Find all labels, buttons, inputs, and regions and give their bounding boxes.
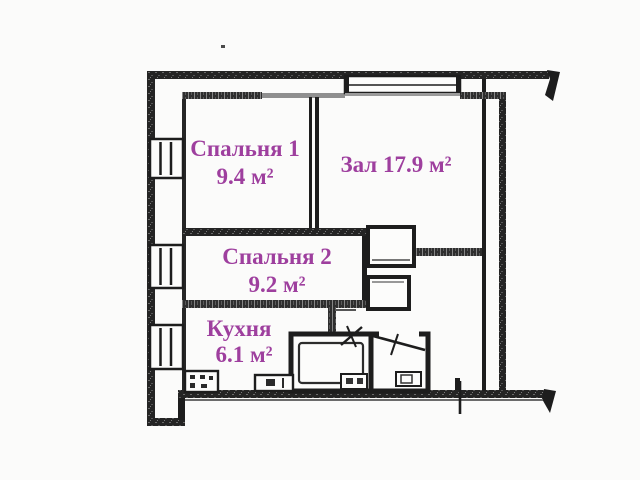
closets [368,227,414,309]
washbasin-detail-b [357,378,363,384]
wall-hallway-hatch [415,248,482,256]
window-top-cap-left [345,76,349,93]
wall-hall-top-right [460,92,506,99]
entrance-door-jamb [455,378,460,390]
floor-plan-page: Спальня 1 9.4 м² Зал 17.9 м² Спальня 2 9… [0,0,640,480]
wall-divider-bedroom1-left [309,97,312,230]
stove-burner-2 [200,375,205,379]
label-bedroom2-area: 9.2 м² [248,272,305,297]
stove-burner-4 [190,383,195,388]
wall-kitchen-right-stub [336,309,356,311]
wall-bottom-underline [185,399,543,401]
wc [371,330,428,391]
stove-icon [185,371,218,392]
wall-corridor-outer [499,98,506,391]
stove-burner-5 [201,384,207,388]
wall-divider-bedroom1-right [315,97,319,230]
window-bay-2 [150,245,183,288]
label-bedroom2-name: Спальня 2 [222,244,332,269]
label-bedroom1-area: 9.4 м² [216,164,273,189]
wc-door-opening [379,330,419,338]
label-bedroom1-name: Спальня 1 [190,136,300,161]
kitchen-fixtures [185,371,293,392]
living-room-window [345,76,460,96]
stove-burner-3 [209,376,213,380]
wall-kitchen-top [182,300,370,308]
window-bay-3 [150,325,183,369]
label-livingroom-name: Зал 17.9 м² [340,152,451,177]
label-kitchen-area: 6.1 м² [215,342,272,367]
bathroom [291,334,371,391]
wall-bedroom1-top-light [262,93,345,98]
wall-bedroom1-top [182,92,262,99]
wall-corridor-inner [482,79,486,391]
washbasin-icon [341,374,367,389]
window-top-cap-right [456,76,460,93]
window-bay-1 [150,139,183,178]
wall-bottom-right-tip [542,389,556,413]
window-top-sill-line [345,93,460,96]
label-kitchen-name: Кухня [207,316,272,341]
left-wall-windows [150,139,183,369]
kitchen-sink-detail [266,379,275,386]
toilet-icon [396,372,421,386]
floor-plan: Спальня 1 9.4 м² Зал 17.9 м² Спальня 2 9… [0,0,640,480]
washbasin-detail-a [346,378,353,384]
stove-burner-1 [190,375,195,379]
scan-artifact-dot [221,45,225,48]
